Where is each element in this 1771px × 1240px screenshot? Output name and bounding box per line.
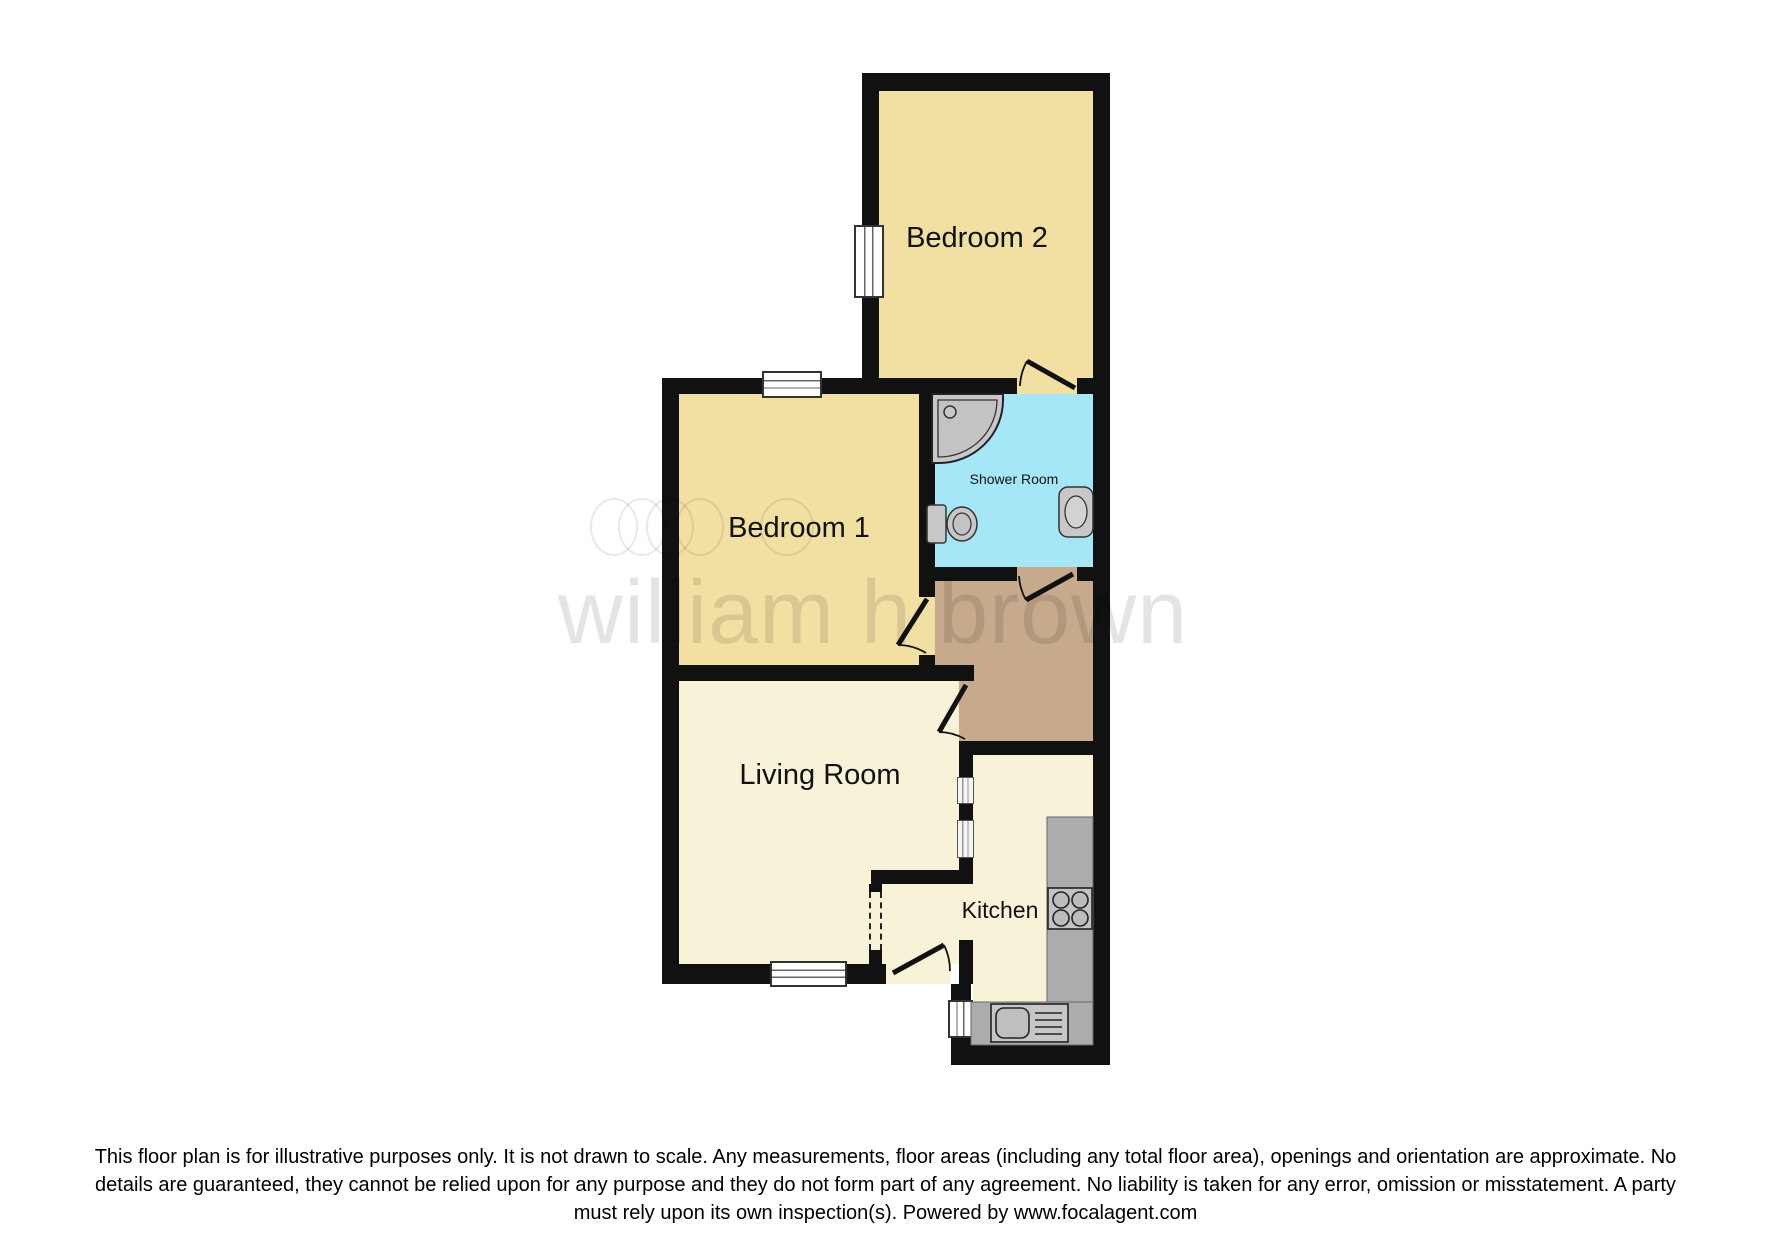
room-label-living-room: Living Room	[679, 759, 961, 792]
watermark-text: william h brown	[558, 562, 1188, 665]
room-label-kitchen: Kitchen	[940, 897, 1060, 924]
room-label-bedroom-1: Bedroom 1	[679, 512, 919, 545]
door-living-room	[939, 685, 966, 739]
disclaimer-line-1: This floor plan is for illustrative purp…	[0, 1143, 1771, 1171]
disclaimer-line-3: must rely upon its own inspection(s). Po…	[0, 1199, 1771, 1227]
corner-shower-icon	[932, 394, 1003, 463]
room-label-shower-room: Shower Room	[935, 471, 1093, 487]
toilet-icon	[927, 505, 977, 543]
kitchen-sink-icon	[991, 1004, 1068, 1042]
door-entrance	[893, 945, 950, 973]
room-label-bedroom-2: Bedroom 2	[860, 222, 1094, 255]
door-bedroom2	[1020, 361, 1075, 388]
disclaimer-line-2: details are guaranteed, they cannot be r…	[0, 1171, 1771, 1199]
disclaimer: This floor plan is for illustrative purp…	[0, 1143, 1771, 1227]
floor-plan-page: { "plan": { "type": "floorplan", "rooms"…	[0, 0, 1771, 1240]
wash-basin-icon	[1059, 487, 1093, 537]
